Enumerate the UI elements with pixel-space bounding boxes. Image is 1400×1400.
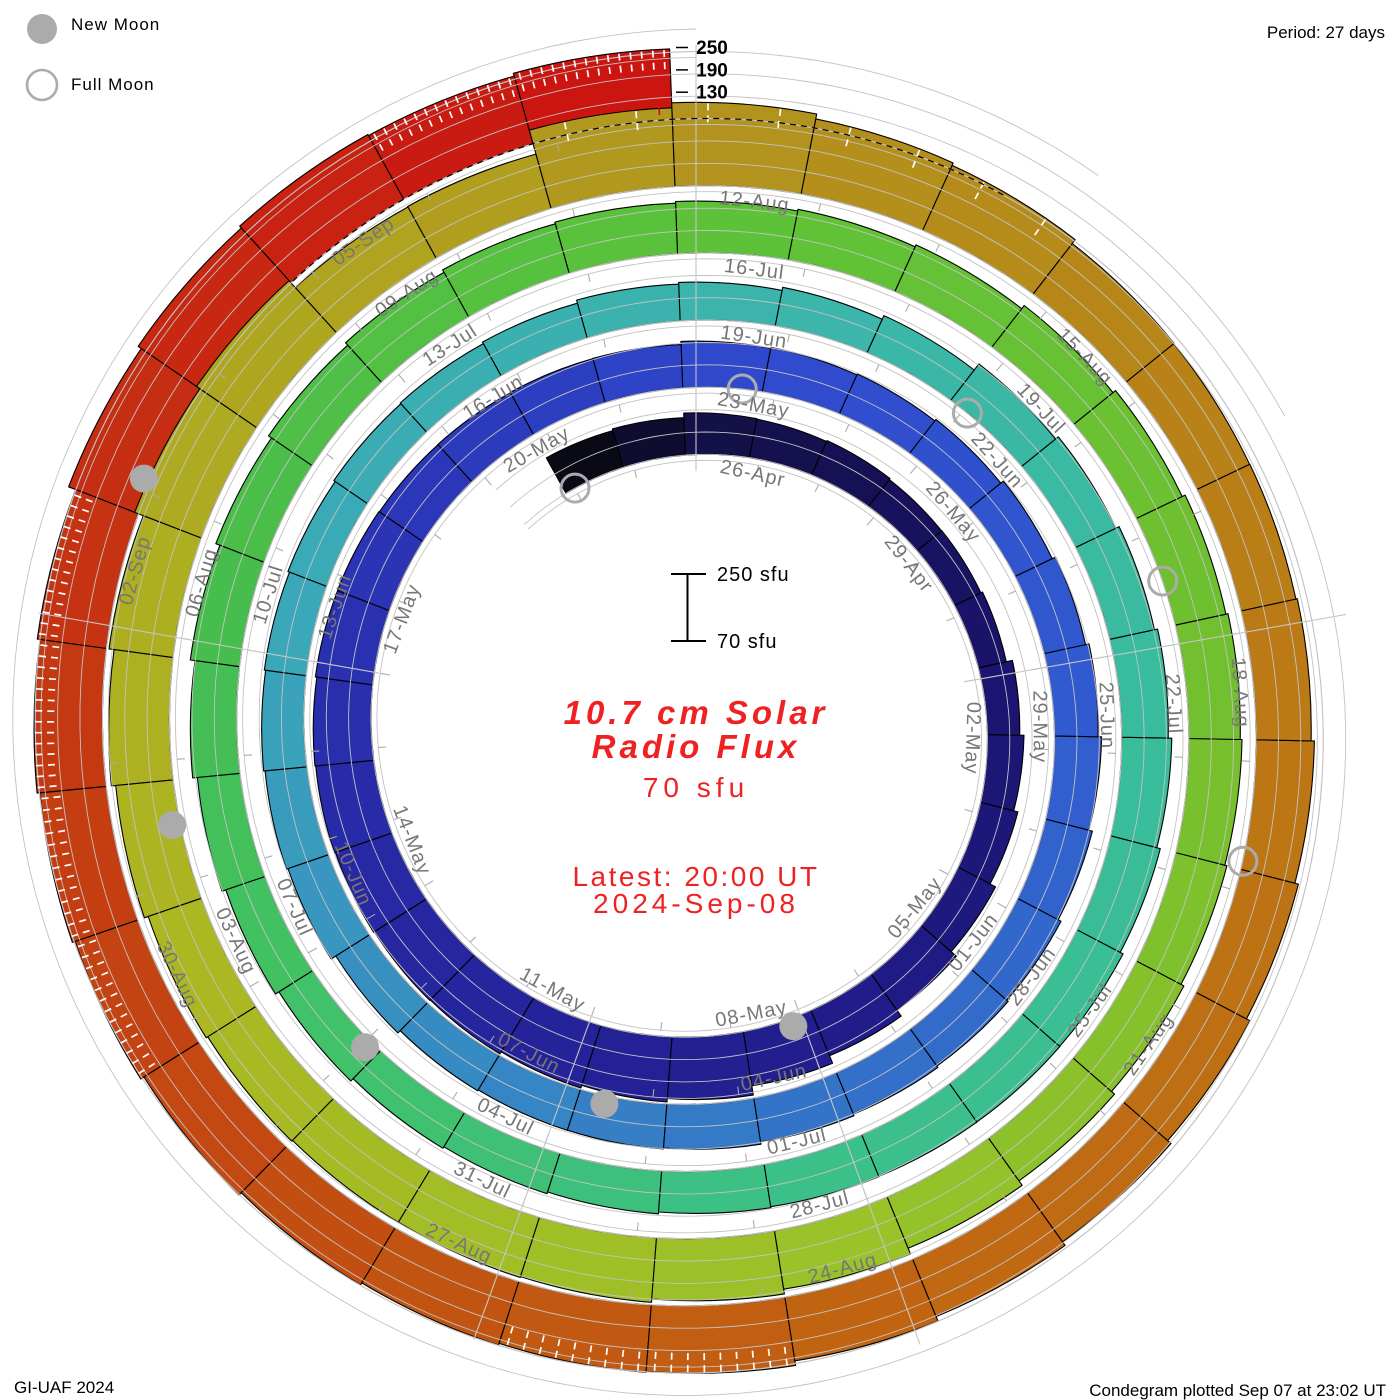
svg-text:2024-Sep-08: 2024-Sep-08 [593, 888, 799, 919]
svg-text:130: 130 [696, 83, 728, 104]
svg-text:Radio Flux: Radio Flux [592, 728, 801, 765]
svg-text:Full Moon: Full Moon [71, 75, 155, 94]
svg-text:Period: 27 days: Period: 27 days [1267, 23, 1385, 42]
svg-text:10.7 cm Solar: 10.7 cm Solar [564, 694, 829, 731]
svg-text:18-Aug: 18-Aug [1227, 657, 1254, 729]
svg-text:GI-UAF 2024: GI-UAF 2024 [14, 1378, 114, 1397]
svg-text:70 sfu: 70 sfu [717, 631, 777, 653]
svg-text:250 sfu: 250 sfu [717, 564, 790, 586]
svg-text:New Moon: New Moon [71, 15, 160, 34]
svg-text:250: 250 [696, 38, 728, 59]
svg-text:02-May: 02-May [960, 701, 984, 774]
svg-text:70 sfu: 70 sfu [643, 772, 749, 803]
svg-text:190: 190 [696, 60, 728, 81]
svg-text:22-Jul: 22-Jul [1161, 673, 1186, 735]
svg-text:Condegram plotted Sep 07 at 23: Condegram plotted Sep 07 at 23:02 UT [1089, 1381, 1386, 1400]
svg-text:25-Jun: 25-Jun [1094, 682, 1118, 750]
svg-text:29-May: 29-May [1028, 690, 1051, 763]
